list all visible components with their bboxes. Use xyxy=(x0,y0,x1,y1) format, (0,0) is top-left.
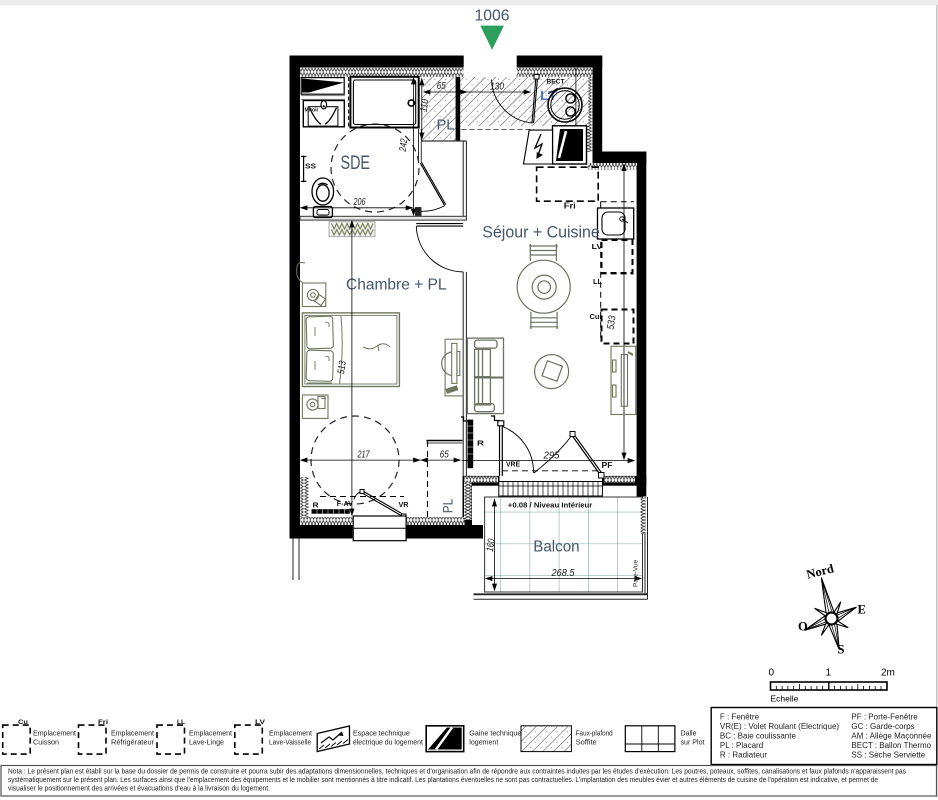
svg-text:Echelle: Echelle xyxy=(771,694,799,704)
svg-text:SS: SS xyxy=(305,163,316,170)
svg-text:1: 1 xyxy=(826,668,832,679)
svg-text:Chambre + PL: Chambre + PL xyxy=(346,276,447,293)
svg-text:533: 533 xyxy=(606,315,619,331)
svg-text:Espace technique: Espace technique xyxy=(353,729,410,738)
svg-text:160: 160 xyxy=(485,538,498,553)
svg-text:Miroir: Miroir xyxy=(305,108,320,114)
svg-text:F-AV: F-AV xyxy=(337,501,353,508)
svg-text:Emplacement: Emplacement xyxy=(269,729,313,738)
svg-text:sur Plot: sur Plot xyxy=(681,738,706,747)
svg-text:PF : Porte-Fenêtre: PF : Porte-Fenêtre xyxy=(851,713,918,722)
svg-text:LL: LL xyxy=(593,277,602,286)
svg-text:Dalle: Dalle xyxy=(681,729,697,738)
svg-text:Gaine technique: Gaine technique xyxy=(469,729,521,738)
svg-text:Emplacement: Emplacement xyxy=(33,729,77,738)
svg-text:Lave-Vaisselle: Lave-Vaisselle xyxy=(269,738,311,747)
svg-text:SDE: SDE xyxy=(341,153,371,174)
svg-text:130: 130 xyxy=(490,82,504,93)
svg-text:AM : Allège Maçonnée: AM : Allège Maçonnée xyxy=(851,732,932,741)
svg-text:65: 65 xyxy=(437,81,446,92)
svg-text:VR: VR xyxy=(399,502,409,509)
svg-text:Lave-Linge: Lave-Linge xyxy=(189,738,224,747)
svg-text:SS : Sèche Serviette: SS : Sèche Serviette xyxy=(851,751,925,760)
svg-text:Pare-Vue: Pare-Vue xyxy=(633,559,640,587)
svg-text:0: 0 xyxy=(769,668,775,679)
svg-text:Séjour + Cuisine: Séjour + Cuisine xyxy=(482,224,600,242)
svg-text:+0.08 / Niveau Intérieur: +0.08 / Niveau Intérieur xyxy=(508,501,593,510)
svg-text:S: S xyxy=(838,643,845,657)
svg-text:Cuisson: Cuisson xyxy=(33,738,59,747)
svg-text:295: 295 xyxy=(543,451,560,462)
svg-text:LV: LV xyxy=(592,242,603,251)
svg-text:VRE: VRE xyxy=(506,462,520,469)
svg-text:GC : Garde-corps: GC : Garde-corps xyxy=(851,722,914,731)
svg-text:110: 110 xyxy=(419,98,432,113)
svg-text:513: 513 xyxy=(336,360,349,375)
svg-text:PL : Placard: PL : Placard xyxy=(720,741,763,750)
svg-text:BECT : Ballon Thermo: BECT : Ballon Thermo xyxy=(851,741,931,750)
svg-text:Nota : Le présent plan est éta: Nota : Le présent plan est établi sur la… xyxy=(8,769,907,776)
svg-text:systématiquement sur le présen: systématiquement sur le présent plan. Le… xyxy=(8,777,878,784)
svg-text:Cui: Cui xyxy=(590,312,602,321)
svg-text:Soffite: Soffite xyxy=(576,738,597,747)
svg-text:Réfrigérateur: Réfrigérateur xyxy=(111,738,154,747)
svg-text:O: O xyxy=(798,620,808,634)
svg-text:VR(E) : Volet Roulant (Electri: VR(E) : Volet Roulant (Electrique) xyxy=(720,722,839,731)
svg-text:électrique du logement: électrique du logement xyxy=(353,738,424,747)
svg-text:PL: PL xyxy=(441,498,456,513)
svg-text:E: E xyxy=(858,603,866,617)
svg-text:visualiser le positionnement d: visualiser le positionnement des arrivée… xyxy=(8,786,270,793)
svg-text:268.5: 268.5 xyxy=(551,568,575,579)
svg-text:Cu: Cu xyxy=(18,719,28,726)
svg-text:242: 242 xyxy=(398,138,411,154)
svg-text:logement: logement xyxy=(469,738,499,747)
svg-text:PL: PL xyxy=(437,117,455,134)
svg-text:Emplacement: Emplacement xyxy=(111,729,155,738)
svg-text:PF: PF xyxy=(602,461,613,470)
svg-text:BECT: BECT xyxy=(547,79,565,86)
svg-text:2m: 2m xyxy=(881,668,895,679)
svg-text:LL: LL xyxy=(177,719,185,726)
svg-text:F : Fenêtre: F : Fenêtre xyxy=(720,713,760,722)
svg-text:Fri: Fri xyxy=(98,719,108,726)
svg-text:Emplacement: Emplacement xyxy=(189,729,233,738)
svg-text:1006: 1006 xyxy=(475,8,510,25)
svg-text:217: 217 xyxy=(357,449,370,460)
svg-text:LV: LV xyxy=(255,719,266,726)
svg-text:BC : Baie coulissante: BC : Baie coulissante xyxy=(720,732,797,741)
svg-text:R: R xyxy=(313,502,319,509)
svg-text:Balcon: Balcon xyxy=(533,539,579,556)
svg-text:206: 206 xyxy=(353,197,366,208)
svg-text:Fri: Fri xyxy=(564,202,576,211)
svg-text:R : Radiateur: R : Radiateur xyxy=(720,751,767,760)
svg-text:Faux-plafond: Faux-plafond xyxy=(576,729,613,738)
svg-text:65: 65 xyxy=(440,449,449,460)
svg-text:R: R xyxy=(477,439,485,448)
